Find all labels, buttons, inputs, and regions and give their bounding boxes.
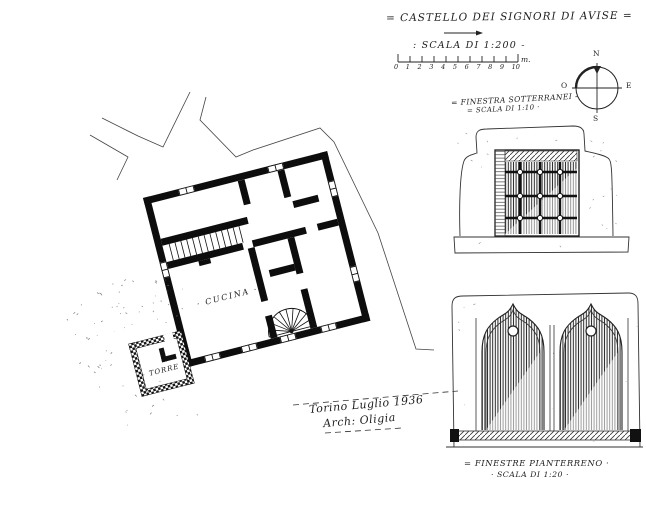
basement-window-detail bbox=[454, 126, 629, 253]
scale-bar-numbers: 0 1 2 3 4 5 6 7 8 9 10 bbox=[394, 63, 520, 71]
north-arrow-icon bbox=[593, 66, 601, 74]
compass-south-label: S bbox=[593, 114, 598, 123]
scale-tick-label: 5 bbox=[453, 63, 457, 71]
scale-tick-label: 1 bbox=[406, 63, 410, 71]
main-scale-note: : SCALA DI 1:200 - bbox=[413, 40, 526, 51]
detail-sill-band bbox=[456, 431, 634, 440]
floor-plan: · TORRE · · CUCINA · bbox=[95, 151, 375, 396]
sheet-title: = CASTELLO DEI SIGNORI DI AVISE = bbox=[386, 10, 633, 25]
scale-tick-label: 8 bbox=[488, 63, 492, 71]
site-boundary-lines bbox=[90, 92, 434, 350]
drawing-canvas: · TORRE · · CUCINA · bbox=[0, 0, 646, 515]
scale-tick-label: 4 bbox=[441, 63, 445, 71]
ground-detail-caption: = FINESTRE PIANTERRENO · bbox=[464, 458, 609, 468]
scale-tick-label: 9 bbox=[500, 63, 504, 71]
compass-east-label: E bbox=[626, 81, 631, 90]
compass-west-label: O bbox=[561, 81, 567, 90]
kitchen-label: · CUCINA · bbox=[196, 285, 259, 309]
drawing-sheet: · TORRE · · CUCINA · bbox=[0, 0, 646, 515]
scale-tick-label: 0 bbox=[394, 63, 398, 71]
scale-tick-label: 3 bbox=[429, 63, 433, 71]
scale-tick-label: 6 bbox=[465, 63, 469, 71]
title-underline-arrow bbox=[444, 31, 483, 36]
scale-bar bbox=[398, 54, 518, 62]
window-sill bbox=[454, 237, 629, 253]
scale-tick-label: 10 bbox=[512, 63, 520, 71]
compass-north-label: N bbox=[593, 49, 600, 58]
ground-detail-scale: · SCALA DI 1:20 · bbox=[491, 470, 569, 479]
scale-tick-label: 2 bbox=[418, 63, 422, 71]
scale-tick-label: 7 bbox=[476, 63, 480, 71]
compass-rose bbox=[572, 63, 622, 113]
tower-label: · TORRE · bbox=[142, 361, 187, 380]
scale-unit-label: m. bbox=[521, 55, 531, 64]
ground-floor-window-detail bbox=[446, 293, 643, 447]
